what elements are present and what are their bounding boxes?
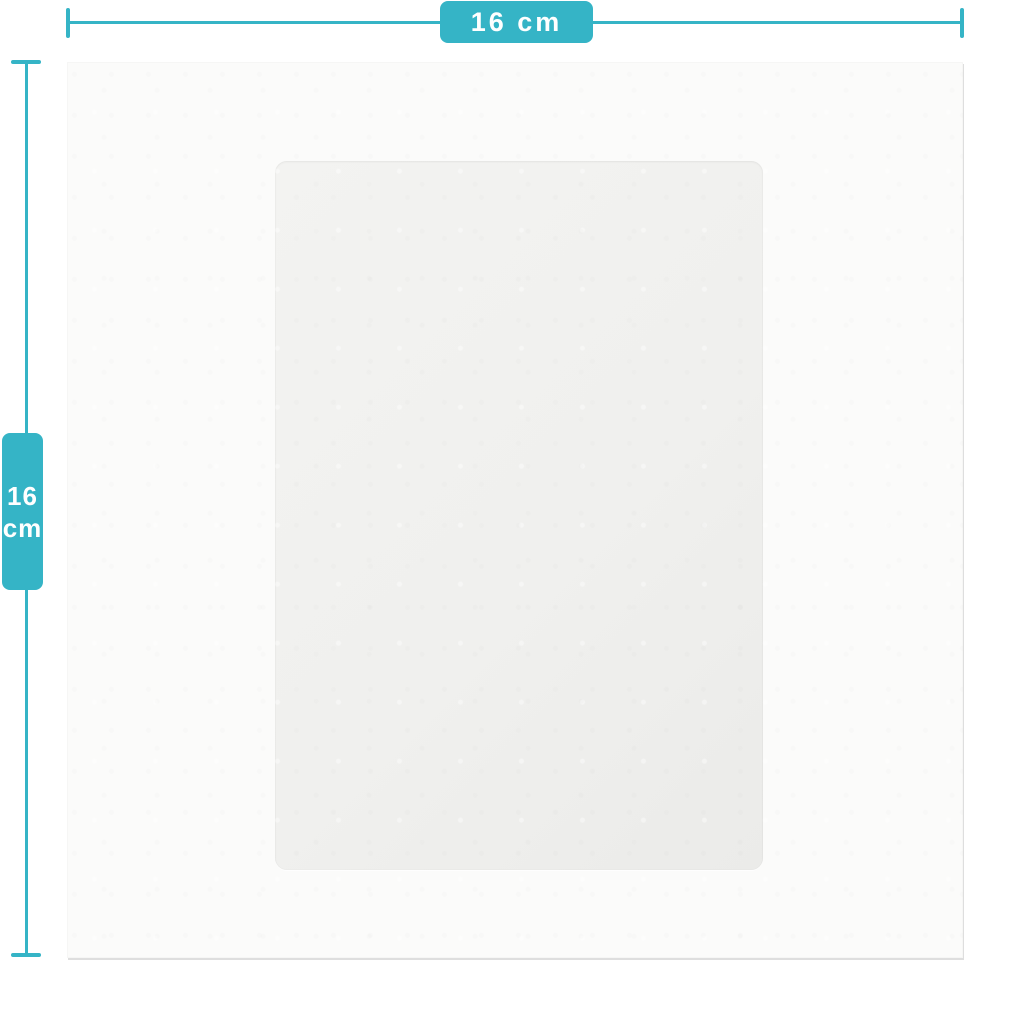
width-dimension-label: 16 cm bbox=[471, 7, 563, 38]
width-dimension-badge: 16 cm bbox=[440, 1, 593, 43]
inset-panel bbox=[275, 161, 763, 870]
height-dimension-value: 16 bbox=[7, 483, 38, 509]
product-card bbox=[67, 62, 963, 958]
height-dimension-endcap-top bbox=[11, 60, 41, 64]
height-dimension-unit: cm bbox=[3, 515, 43, 541]
width-dimension-endcap-right bbox=[960, 8, 964, 38]
height-dimension-endcap-bottom bbox=[11, 953, 41, 957]
height-dimension-badge: 16 cm bbox=[2, 433, 43, 590]
width-dimension-endcap-left bbox=[66, 8, 70, 38]
